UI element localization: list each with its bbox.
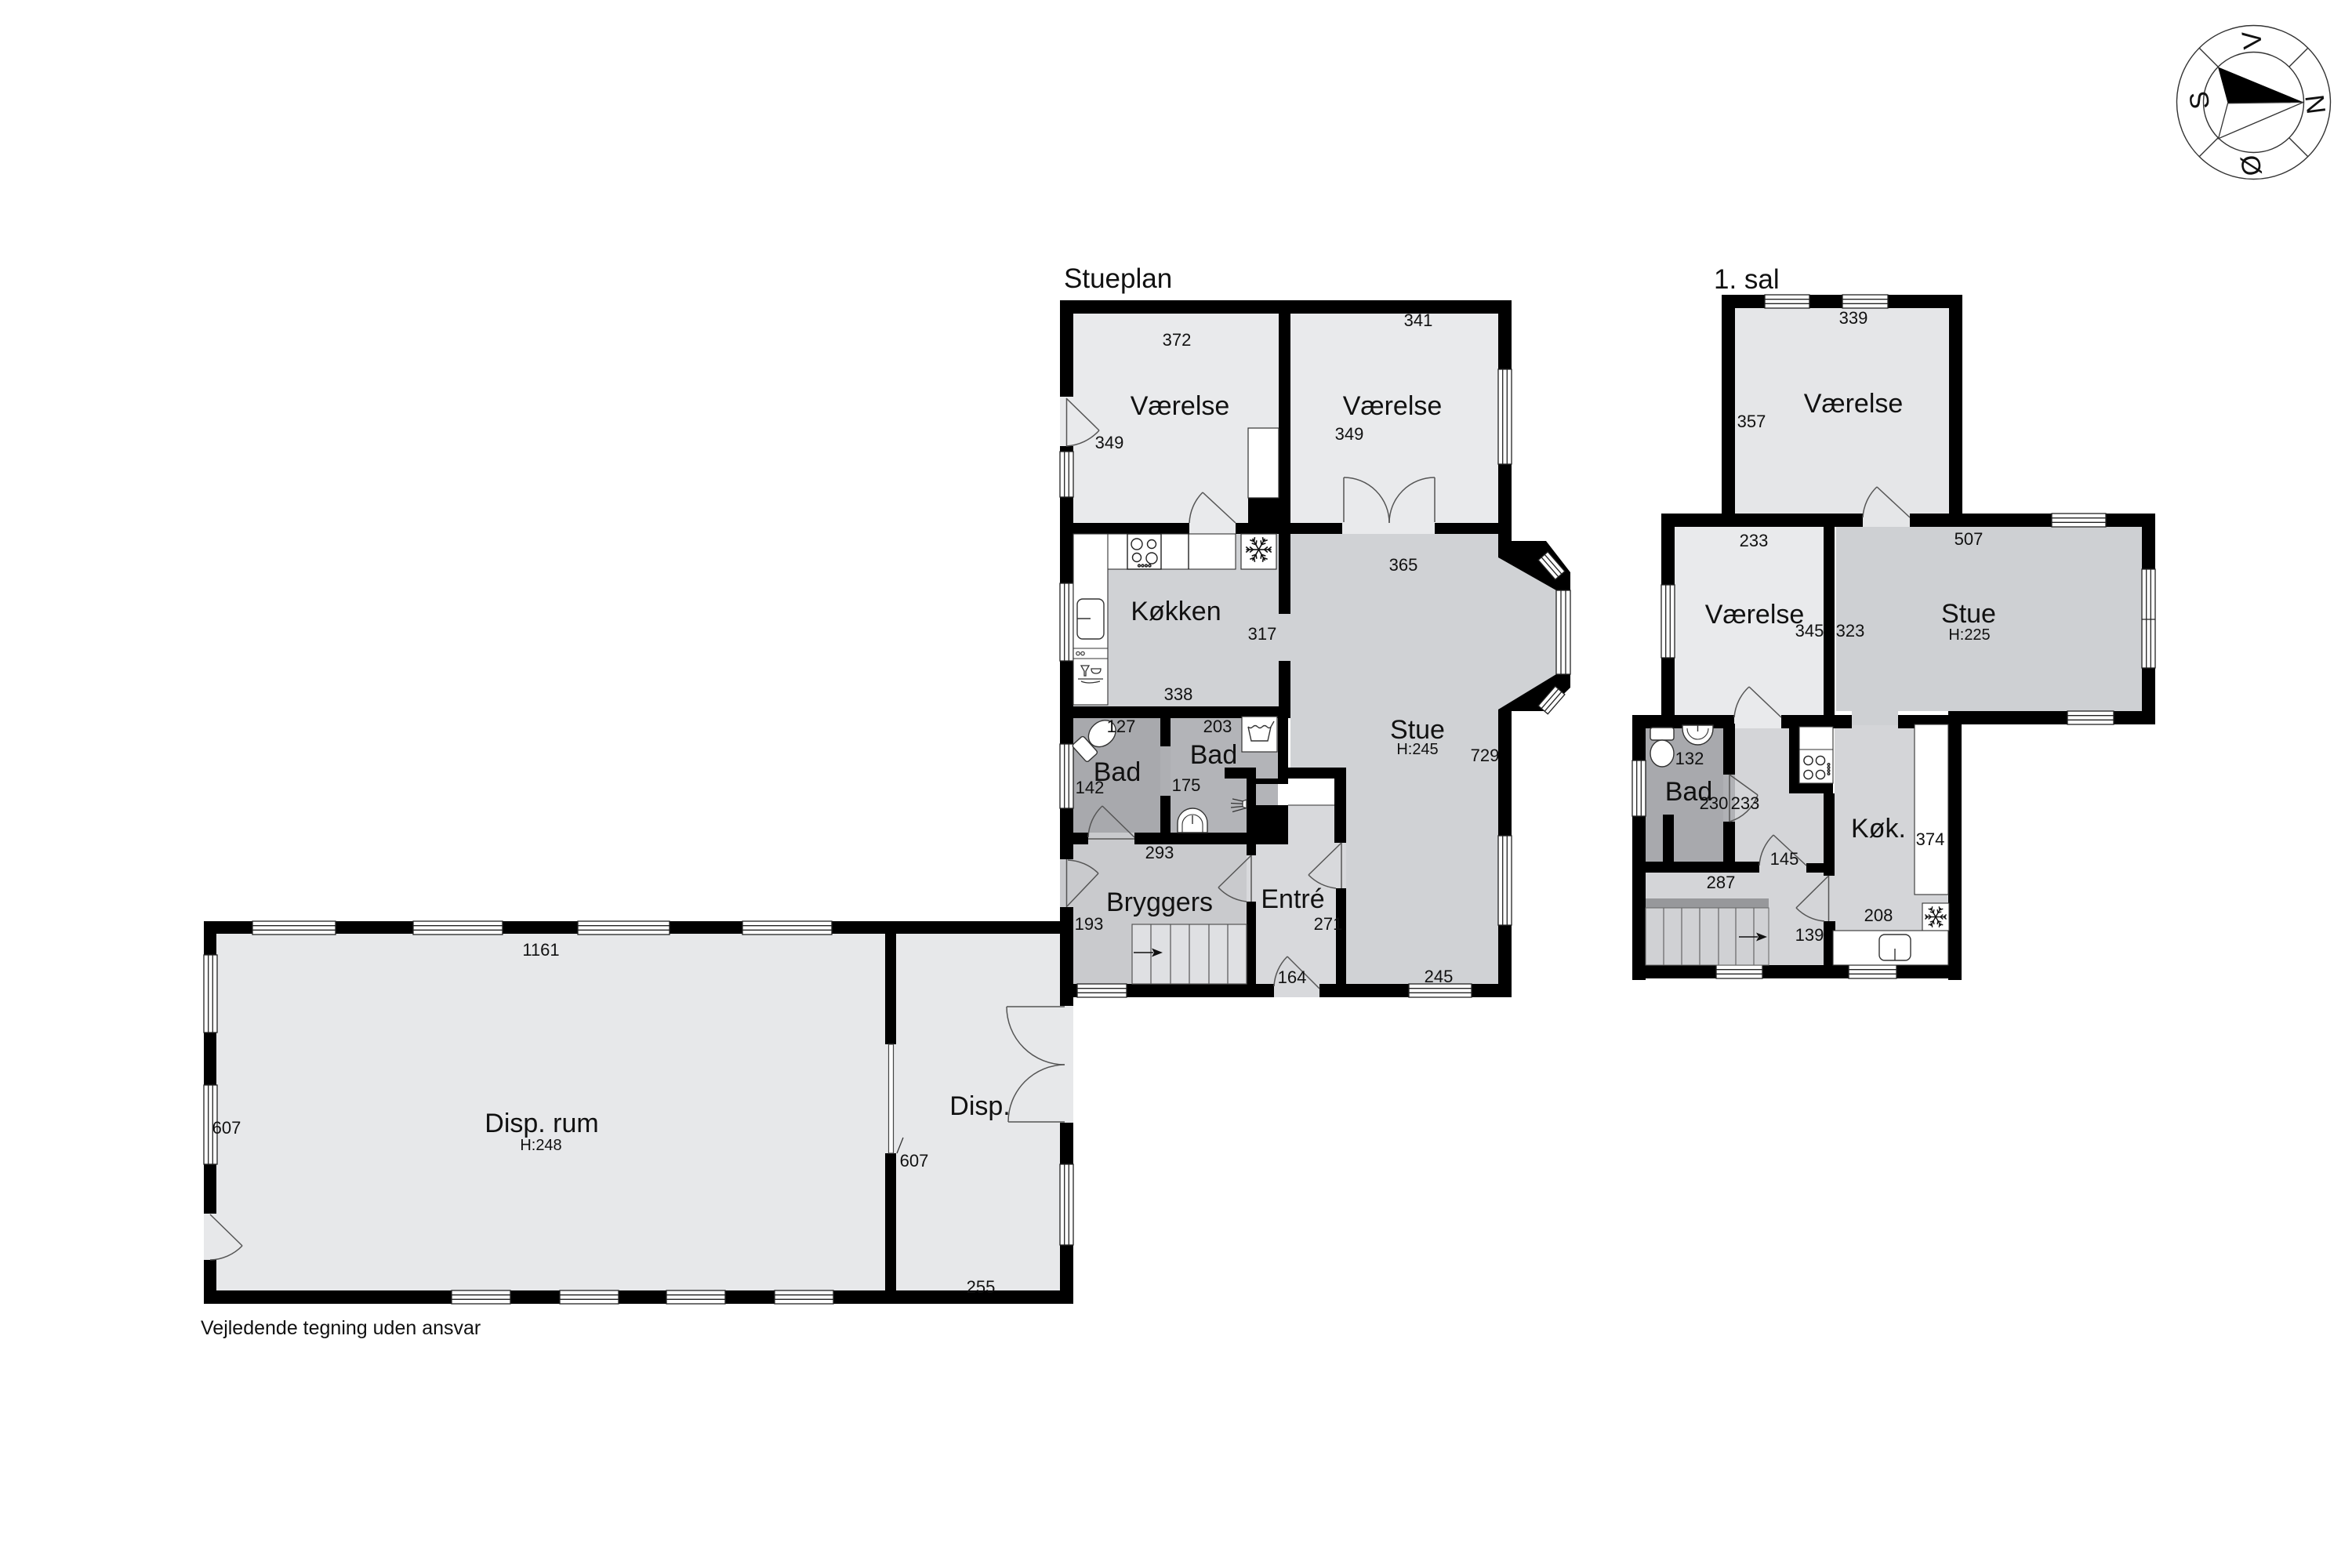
svg-text:349: 349 bbox=[1335, 424, 1364, 444]
svg-text:Værelse: Værelse bbox=[1131, 391, 1230, 421]
svg-text:Stue: Stue bbox=[1941, 599, 1996, 629]
svg-text:H:225: H:225 bbox=[1948, 626, 1990, 644]
svg-text:208: 208 bbox=[1864, 906, 1893, 925]
svg-text:142: 142 bbox=[1076, 778, 1105, 797]
svg-text:Ø: Ø bbox=[2236, 154, 2268, 178]
svg-text:203: 203 bbox=[1203, 717, 1232, 736]
svg-text:341: 341 bbox=[1404, 310, 1433, 330]
svg-text:Disp. rum: Disp. rum bbox=[485, 1109, 598, 1138]
svg-text:Køk.: Køk. bbox=[1851, 814, 1906, 844]
svg-text:139: 139 bbox=[1795, 925, 1824, 945]
svg-text:1161: 1161 bbox=[522, 940, 559, 960]
svg-text:Køkken: Køkken bbox=[1131, 597, 1221, 626]
svg-text:Værelse: Værelse bbox=[1804, 389, 1904, 419]
svg-text:349: 349 bbox=[1095, 433, 1124, 452]
svg-text:245: 245 bbox=[1425, 967, 1454, 986]
svg-text:372: 372 bbox=[1163, 330, 1192, 350]
svg-text:Bad: Bad bbox=[1190, 740, 1238, 770]
svg-text:729: 729 bbox=[1471, 746, 1500, 765]
svg-text:1. sal: 1. sal bbox=[1714, 264, 1780, 295]
svg-text:323: 323 bbox=[1836, 621, 1865, 641]
svg-text:Entré: Entré bbox=[1261, 884, 1324, 914]
svg-text:317: 317 bbox=[1248, 624, 1277, 644]
svg-text:N: N bbox=[2300, 93, 2332, 115]
svg-text:230: 230 bbox=[1700, 793, 1729, 813]
svg-text:132: 132 bbox=[1675, 749, 1704, 768]
svg-text:145: 145 bbox=[1770, 849, 1799, 869]
svg-text:Værelse: Værelse bbox=[1343, 391, 1443, 421]
svg-text:S: S bbox=[2184, 89, 2216, 111]
svg-text:607: 607 bbox=[900, 1151, 929, 1171]
svg-text:233: 233 bbox=[1731, 793, 1760, 813]
svg-text:293: 293 bbox=[1145, 843, 1174, 862]
svg-text:175: 175 bbox=[1172, 775, 1201, 795]
svg-text:Stueplan: Stueplan bbox=[1064, 263, 1172, 294]
svg-text:607: 607 bbox=[212, 1118, 241, 1138]
svg-text:338: 338 bbox=[1164, 684, 1193, 704]
svg-text:H:245: H:245 bbox=[1396, 741, 1438, 758]
svg-text:164: 164 bbox=[1278, 967, 1307, 987]
svg-text:365: 365 bbox=[1389, 555, 1418, 575]
svg-text:Vejledende tegning uden ansvar: Vejledende tegning uden ansvar bbox=[201, 1317, 481, 1339]
svg-text:193: 193 bbox=[1075, 914, 1104, 934]
svg-text:Værelse: Værelse bbox=[1705, 600, 1805, 630]
svg-text:374: 374 bbox=[1916, 829, 1945, 849]
svg-text:255: 255 bbox=[967, 1277, 996, 1297]
svg-text:357: 357 bbox=[1737, 412, 1766, 431]
svg-text:507: 507 bbox=[1955, 529, 1984, 549]
svg-text:Disp.: Disp. bbox=[949, 1091, 1010, 1121]
svg-text:Bryggers: Bryggers bbox=[1106, 887, 1213, 917]
svg-text:127: 127 bbox=[1107, 717, 1136, 736]
svg-text:233: 233 bbox=[1740, 531, 1769, 550]
svg-text:345: 345 bbox=[1795, 621, 1824, 641]
svg-text:H:248: H:248 bbox=[520, 1137, 561, 1154]
svg-text:339: 339 bbox=[1839, 308, 1868, 328]
svg-text:287: 287 bbox=[1707, 873, 1736, 892]
svg-text:271: 271 bbox=[1314, 914, 1343, 934]
